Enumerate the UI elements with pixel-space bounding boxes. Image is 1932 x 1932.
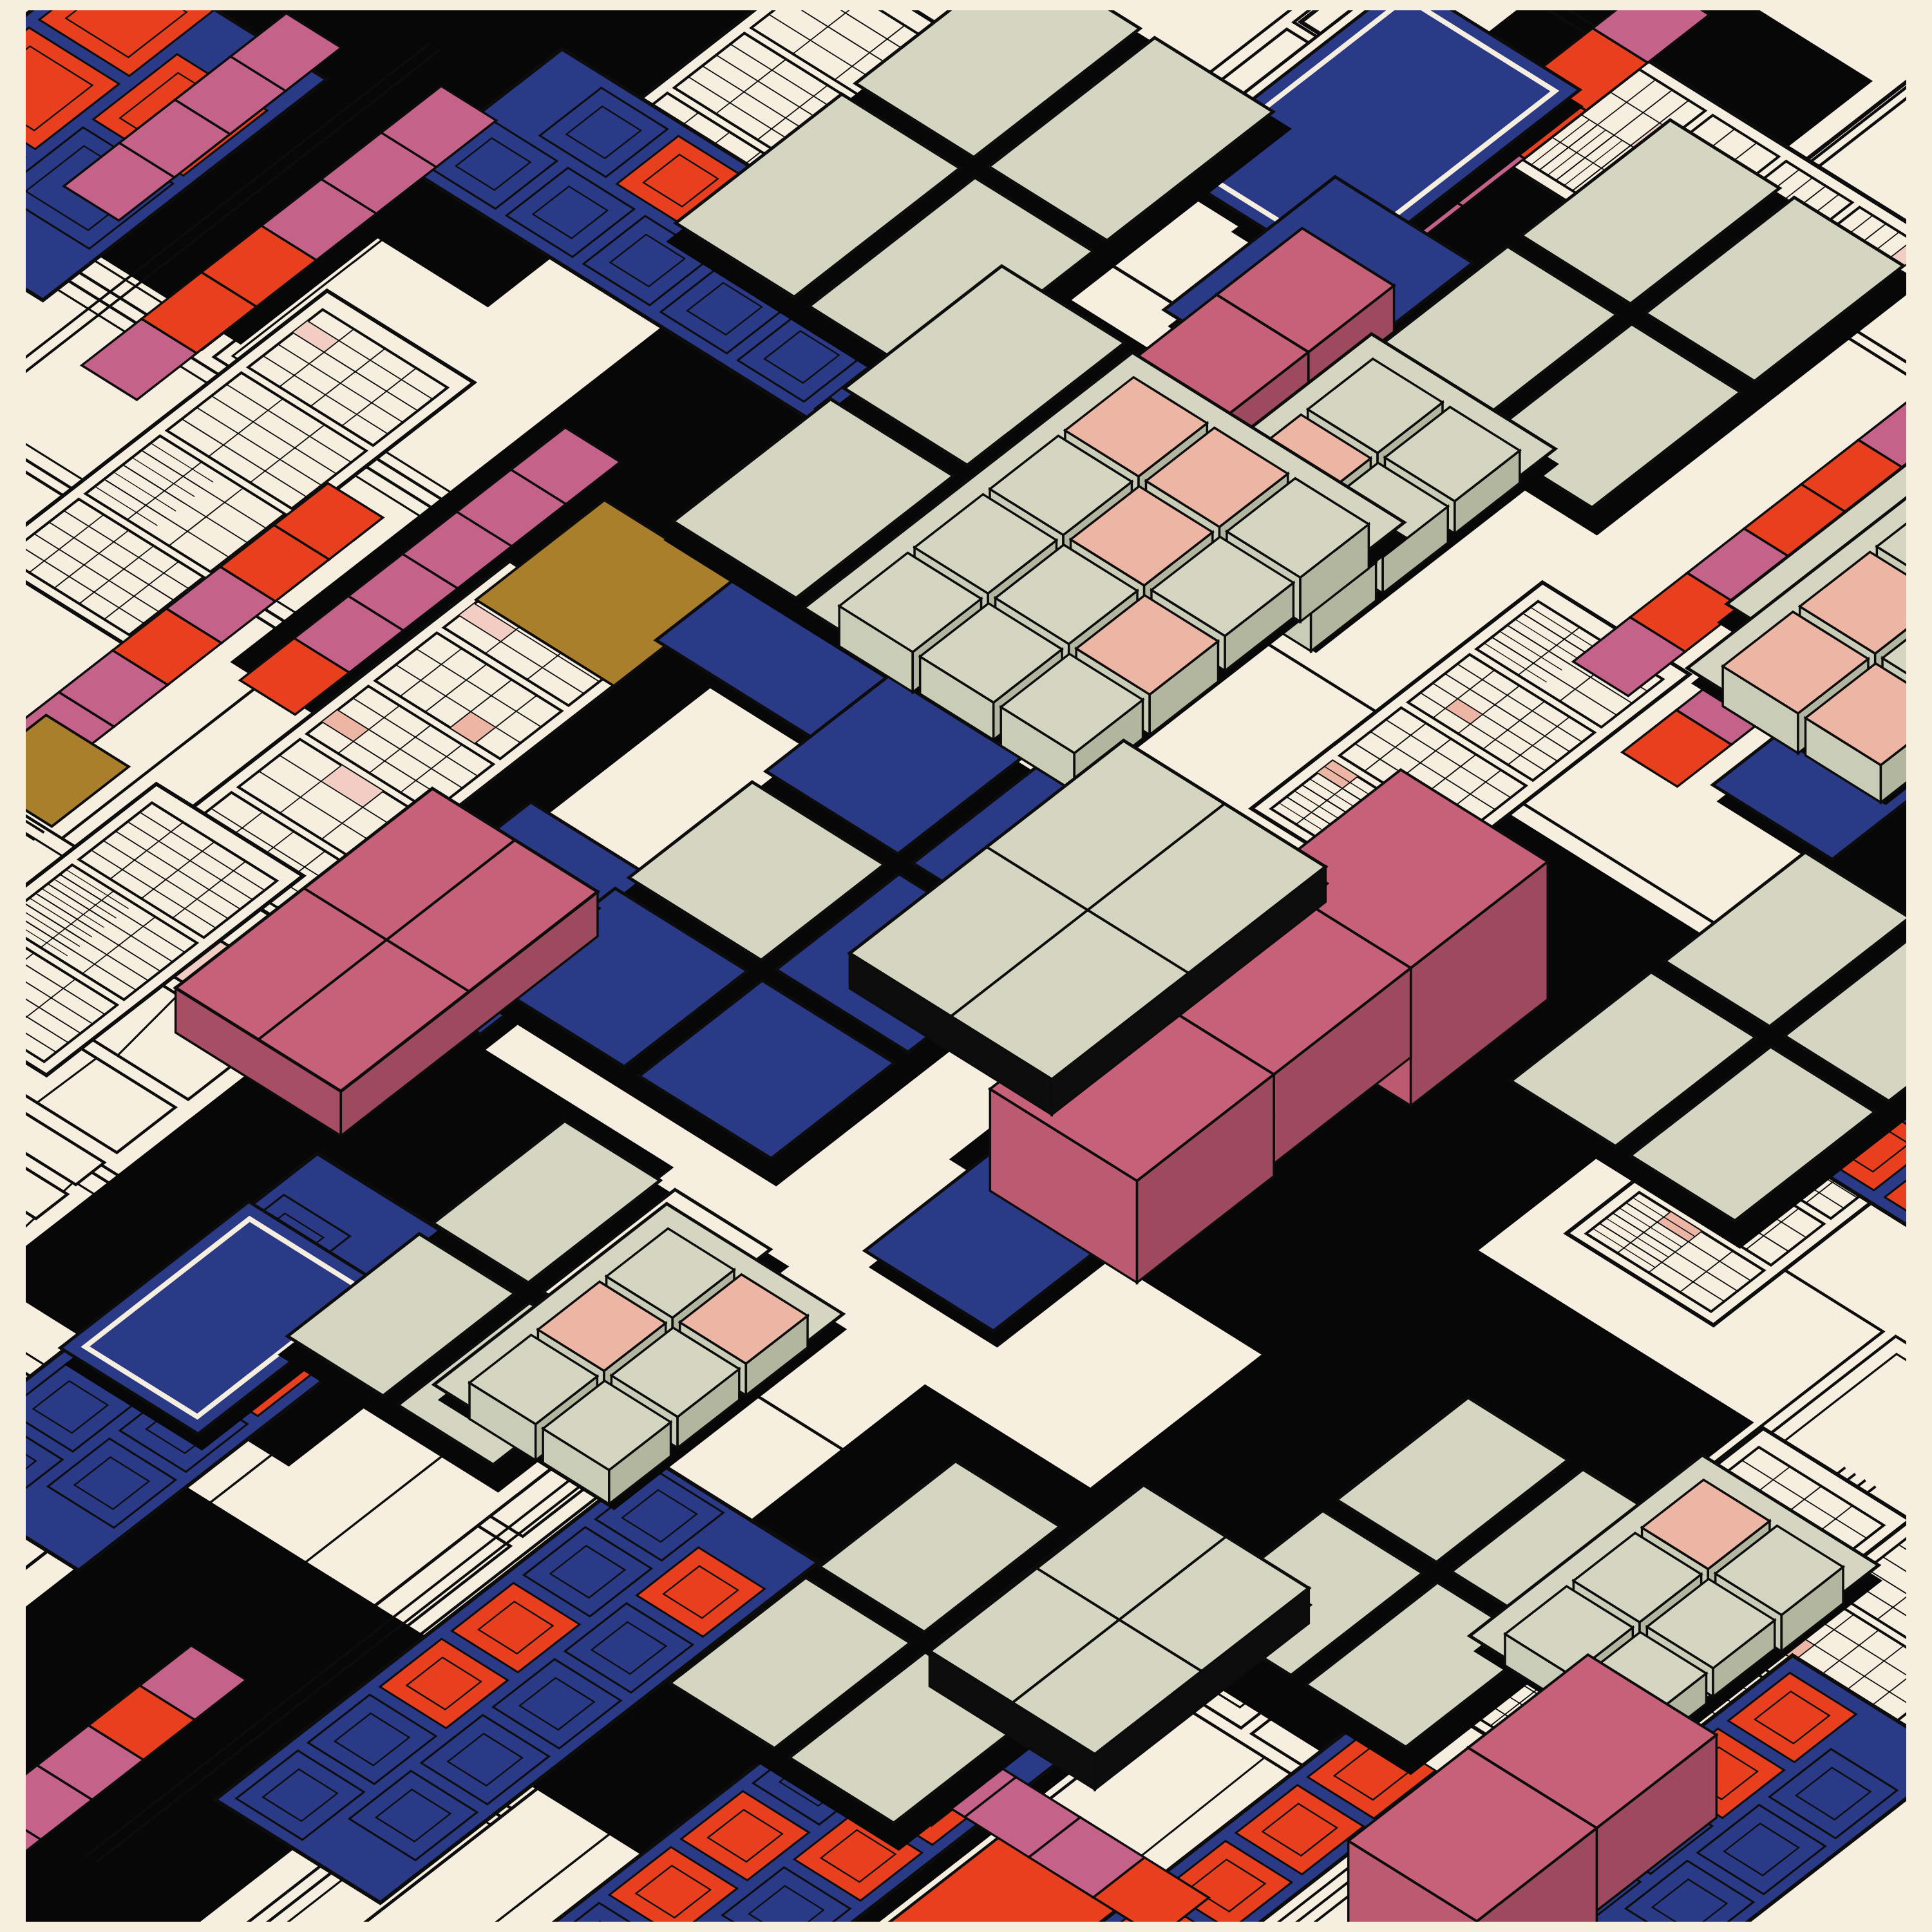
artwork-canvas — [26, 10, 1906, 1922]
generative-artwork — [26, 10, 1906, 1922]
